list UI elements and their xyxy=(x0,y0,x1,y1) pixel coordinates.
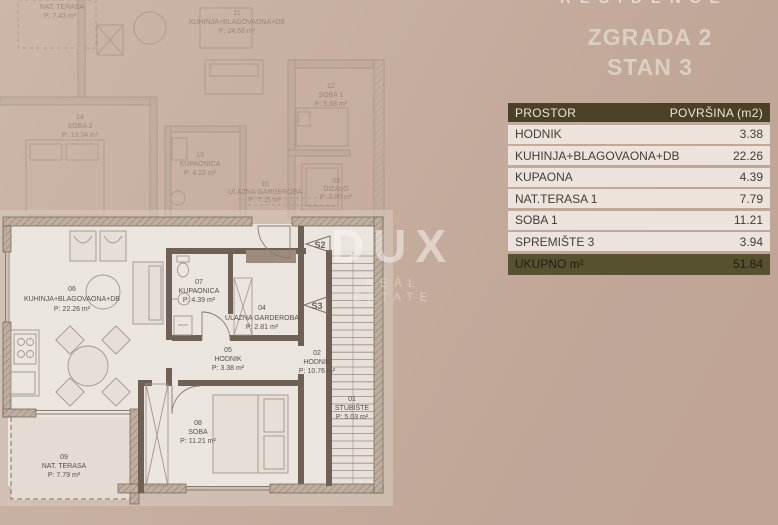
marker-s3: S3 xyxy=(311,301,322,311)
room-number: 02 xyxy=(313,350,321,357)
room-number: 14 xyxy=(76,114,84,121)
room-area-value: 7.79 xyxy=(740,192,763,206)
room-label: DIZALO xyxy=(323,186,349,193)
room-number: 12 xyxy=(327,83,335,90)
room-number: 11 xyxy=(233,10,240,17)
room-label: ULAZNA GARDEROBA xyxy=(228,189,302,196)
room-label: ULAZNA GARDEROBA xyxy=(225,315,299,322)
room-name: SPREMIŠTE 3 xyxy=(515,235,594,249)
room-area: P: 2.81 m² xyxy=(246,324,279,331)
room-area: P: 13.34 m² xyxy=(62,132,99,139)
table-row: KUHINJA+BLAGOVAONA+DB 22.26 xyxy=(508,146,770,165)
room-area-value: 4.39 xyxy=(740,170,763,184)
area-table: PROSTOR POVRŠINA (m2) HODNIK 3.38 KUHINJ… xyxy=(508,103,770,275)
room-area: P: 24.66 m² xyxy=(219,28,256,35)
table-row: KUPAONA 4.39 xyxy=(508,168,770,187)
room-area: P: 4.39 m² xyxy=(183,297,216,304)
room-area: P: 4.22 m² xyxy=(184,170,217,177)
room-name: KUPAONA xyxy=(515,170,573,184)
room-name: KUHINJA+BLAGOVAONA+DB xyxy=(515,149,680,163)
room-area-value: 22.26 xyxy=(733,149,763,163)
room-area: P: 3.38 m² xyxy=(212,365,245,372)
room-label: KUPAONICA xyxy=(180,161,221,168)
room-number: 05 xyxy=(224,347,232,354)
screenshot-root: NAT. TERASA P: 7.43 m² 11 KUHINJA+BLAGOV… xyxy=(0,0,778,525)
building-title: ZGRADA 2 xyxy=(530,22,770,52)
table-total-row: UKUPNO m² 51.84 xyxy=(508,254,770,275)
title-block: ZGRADA 2 STAN 3 xyxy=(530,22,770,82)
room-label: KUHINJA+BLAGOVAONA+DB xyxy=(189,19,285,26)
room-number: 03 xyxy=(332,178,340,185)
table-row: SPREMIŠTE 3 3.94 xyxy=(508,232,770,251)
room-label: SOBA 2 xyxy=(68,123,93,130)
table-row: HODNIK 3.38 xyxy=(508,125,770,144)
unit-title: STAN 3 xyxy=(530,52,770,82)
room-name: NAT.TERASA 1 xyxy=(515,192,597,206)
room-area: P: 7.43 m² xyxy=(44,13,77,20)
residence-logo-text: RESIDENCE xyxy=(560,0,778,7)
room-label: STUBIŠTE xyxy=(335,403,370,412)
room-number: 08 xyxy=(194,420,202,427)
room-label: NAT. TERASA xyxy=(40,4,85,11)
room-label: HODNIK xyxy=(303,359,331,366)
room-number: 09 xyxy=(60,454,68,461)
room-area-value: 11.21 xyxy=(734,213,763,227)
table-row: NAT.TERASA 1 7.79 xyxy=(508,189,770,208)
room-area: P: 7.15 m² xyxy=(249,197,282,204)
room-number: 06 xyxy=(68,286,76,293)
room-area: P: 10.76 m² xyxy=(299,368,336,375)
active-apartment: S2 S3 06 KUHINJA+BLAGOVAONA+DB P: 22.26 … xyxy=(0,210,393,506)
table-row: SOBA 1 11.21 xyxy=(508,211,770,230)
room-name: SOBA 1 xyxy=(515,213,558,227)
room-label: SOBA xyxy=(188,429,208,436)
floorplan: NAT. TERASA P: 7.43 m² 11 KUHINJA+BLAGOV… xyxy=(0,0,490,525)
room-label: KUPAONICA xyxy=(179,288,220,295)
room-area: P: 11.21 m² xyxy=(180,438,216,445)
room-number: 04 xyxy=(258,305,266,312)
room-label: HODNIK xyxy=(214,356,242,363)
room-area: P: 22.26 m² xyxy=(54,306,91,313)
room-number: 13 xyxy=(196,152,204,159)
marker-s2: S2 xyxy=(314,240,325,250)
total-label: UKUPNO m² xyxy=(515,257,584,271)
header-room-column: PROSTOR xyxy=(515,106,576,120)
room-area: P: 5.03 m² xyxy=(336,414,369,421)
room-area: P: 5.68 m² xyxy=(315,101,348,108)
header-area-column: POVRŠINA (m2) xyxy=(670,106,763,120)
room-area: P: 3.80 m² xyxy=(320,194,353,201)
room-number: 07 xyxy=(195,279,203,286)
room-name: HODNIK xyxy=(515,127,562,141)
table-header-row: PROSTOR POVRŠINA (m2) xyxy=(508,103,770,122)
total-area-value: 51.84 xyxy=(733,257,763,271)
room-area: P: 7.79 m² xyxy=(48,472,81,479)
room-number: 01 xyxy=(348,396,356,403)
room-label: KUHINJA+BLAGOVAONA+DB xyxy=(24,296,120,303)
room-area-value: 3.38 xyxy=(740,127,763,141)
room-label: SOBA 1 xyxy=(319,92,344,99)
floorplan-drawing: NAT. TERASA P: 7.43 m² 11 KUHINJA+BLAGOV… xyxy=(0,0,490,525)
room-number: 10 xyxy=(261,181,269,188)
room-label: NAT. TERASA xyxy=(42,463,87,470)
room-area-value: 3.94 xyxy=(740,235,763,249)
